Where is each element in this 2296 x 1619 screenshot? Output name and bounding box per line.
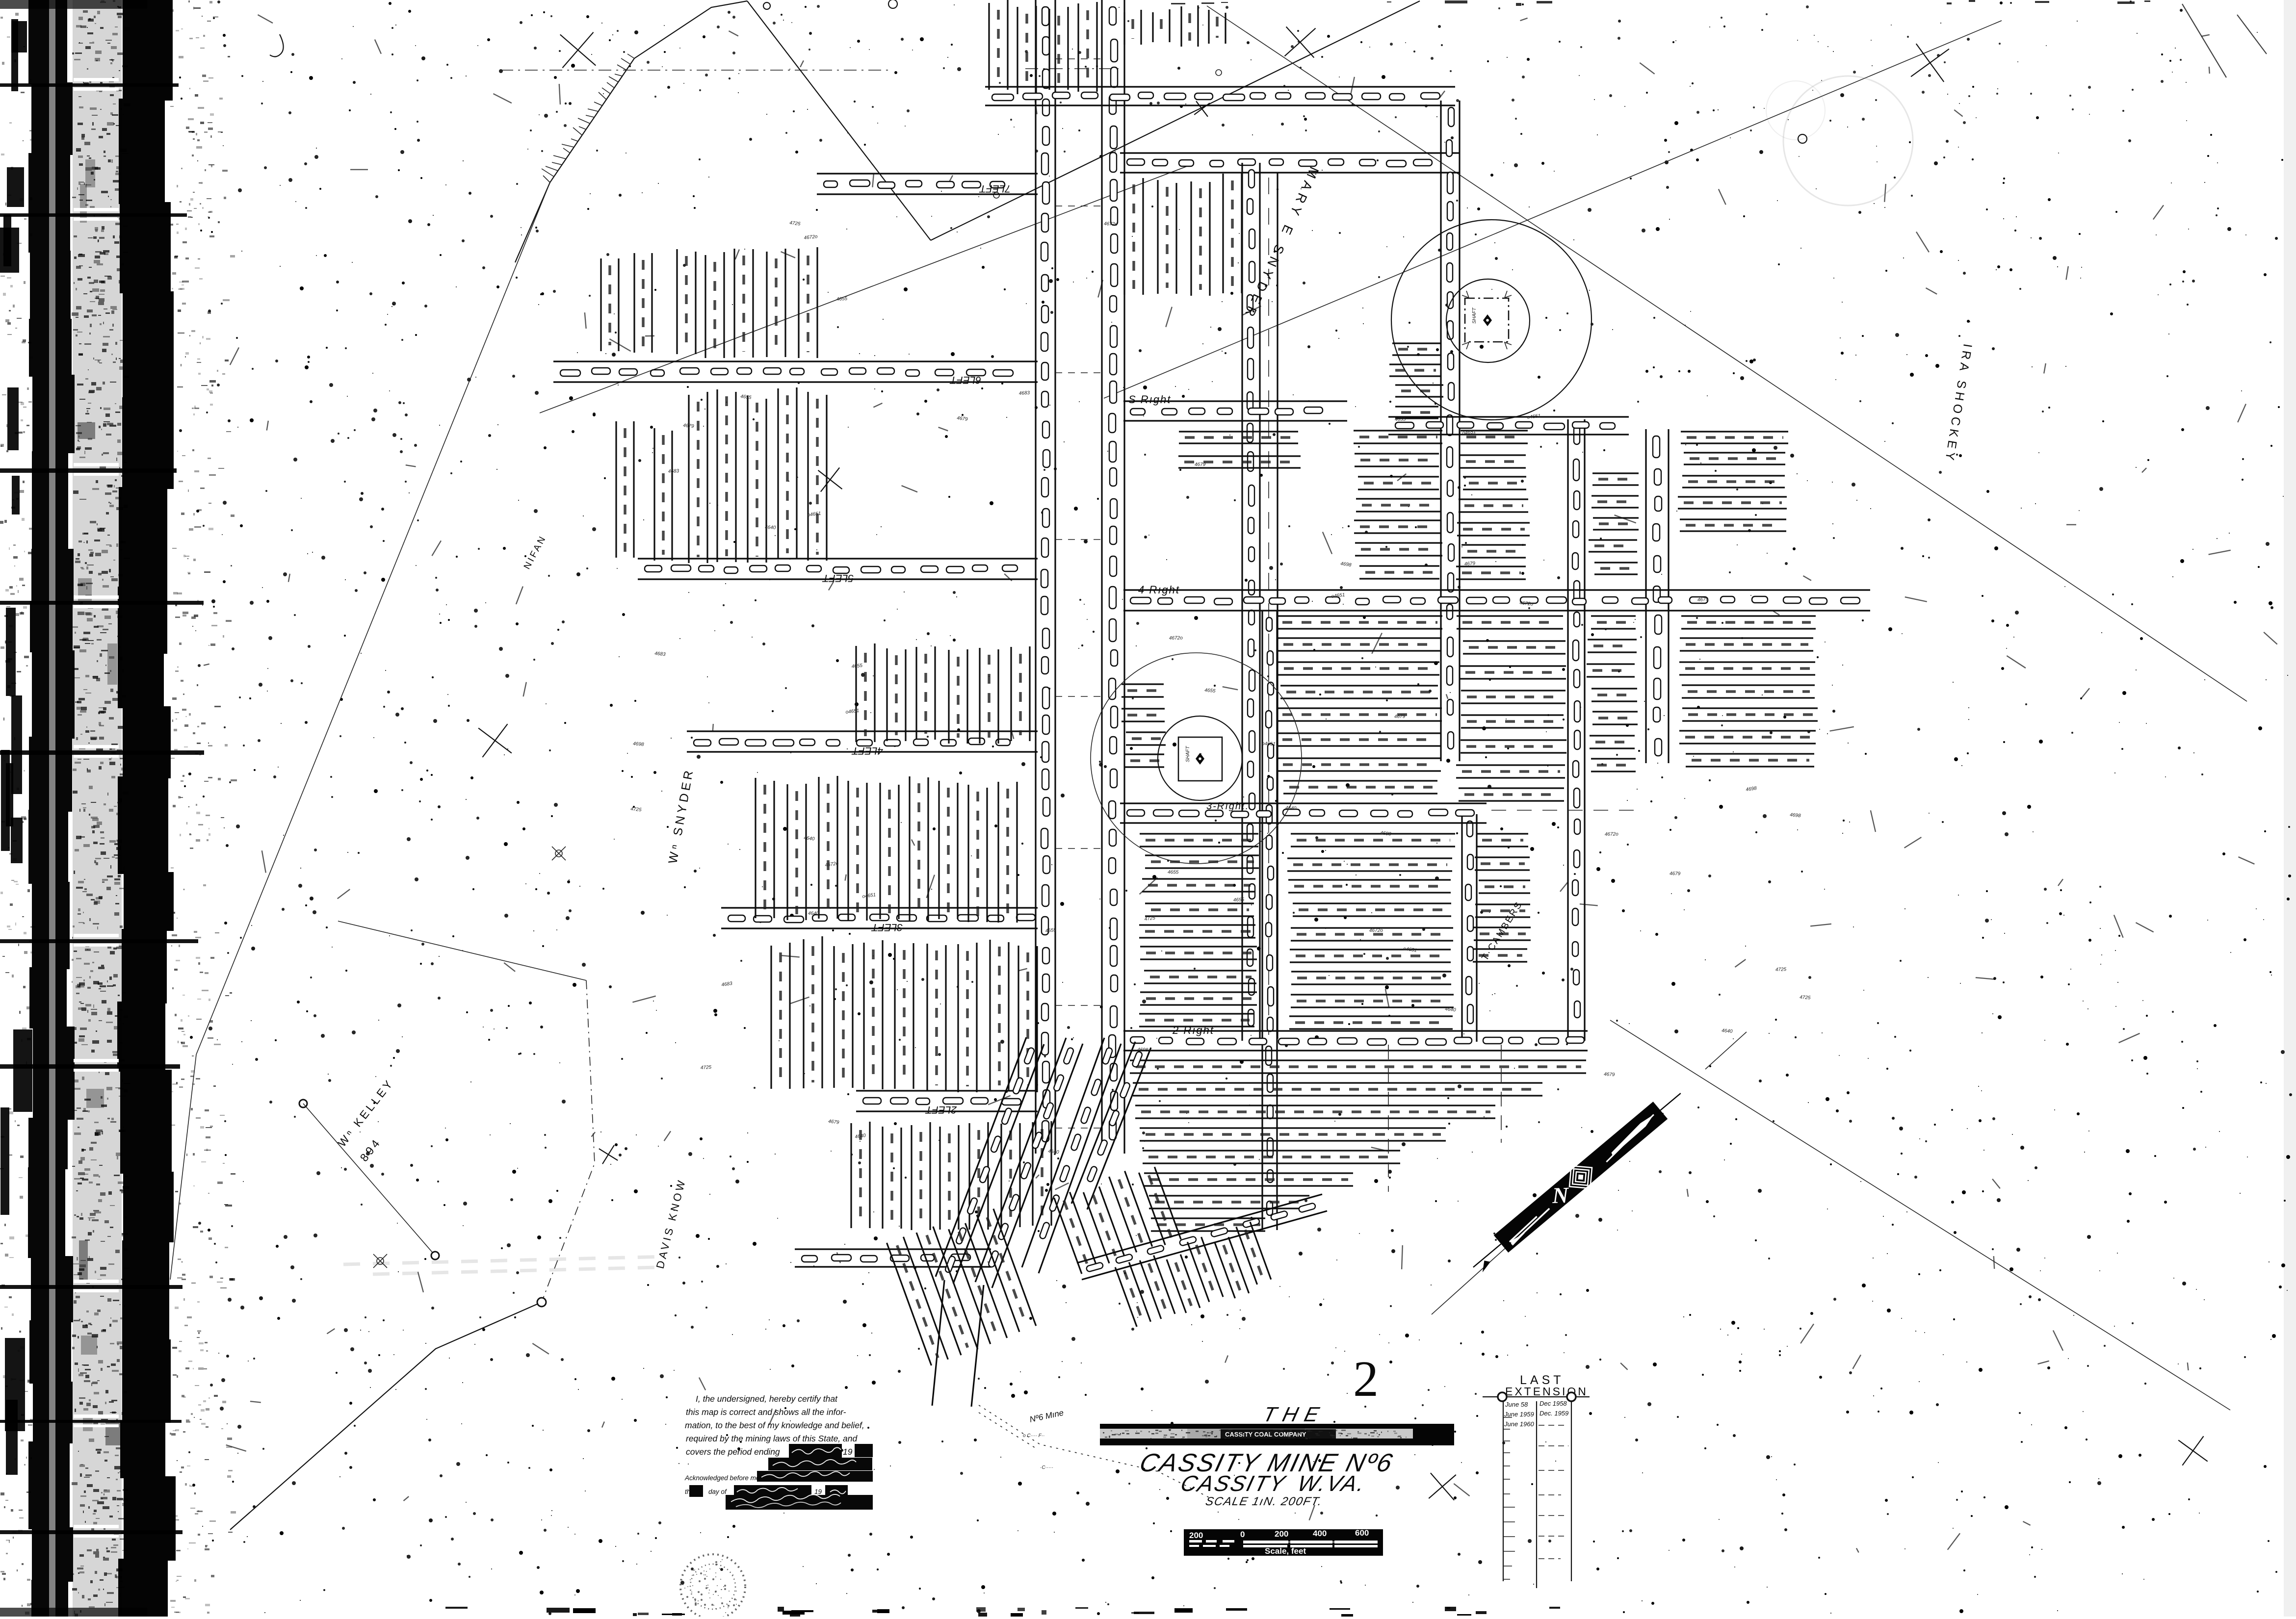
svg-text:4672o: 4672o — [1169, 636, 1183, 641]
svg-text:4640: 4640 — [808, 911, 819, 916]
svg-text:4655: 4655 — [1395, 417, 1406, 422]
svg-text:4679: 4679 — [1464, 561, 1475, 567]
svg-text:June 58: June 58 — [1505, 1401, 1528, 1408]
svg-text:4679: 4679 — [1670, 871, 1681, 876]
svg-text:4679: 4679 — [1604, 1072, 1615, 1078]
svg-text:4672o: 4672o — [1369, 928, 1383, 933]
svg-text:CASSITY W.VA.: CASSITY W.VA. — [1178, 1471, 1370, 1496]
svg-text:Dec. 1959: Dec. 1959 — [1539, 1410, 1568, 1417]
svg-text:4672o: 4672o — [1605, 832, 1618, 837]
svg-text:SCALE 1ıN. 200FT.: SCALE 1ıN. 200FT. — [1204, 1495, 1324, 1508]
svg-text:7LEFT: 7LEFT — [979, 183, 1011, 194]
svg-text:0: 0 — [1240, 1530, 1245, 1539]
svg-text:·C·····: ·C····· — [1040, 1465, 1053, 1470]
svg-text:June 1960: June 1960 — [1504, 1420, 1534, 1428]
svg-text:4LEFT: 4LEFT — [851, 745, 883, 756]
svg-text:4698: 4698 — [633, 741, 645, 747]
svg-text:6LEFT: 6LEFT — [949, 374, 981, 385]
svg-text:4640: 4640 — [1722, 1028, 1733, 1034]
svg-text:4655: 4655 — [1233, 897, 1245, 903]
svg-text:4640: 4640 — [1285, 805, 1297, 811]
svg-text:Scale, feet: Scale, feet — [1265, 1546, 1306, 1556]
svg-text:this map is correct and shows: this map is correct and shows all the in… — [686, 1407, 846, 1417]
svg-text:N: N — [1551, 1182, 1570, 1208]
svg-text:4725: 4725 — [701, 1065, 712, 1071]
svg-text:Dec 1958: Dec 1958 — [1539, 1400, 1567, 1407]
svg-text:4725: 4725 — [1800, 995, 1811, 1001]
svg-text:required by the mining laws of: required by the mining laws of this Stat… — [686, 1434, 858, 1443]
svg-text:5LEFT: 5LEFT — [822, 572, 854, 584]
svg-text:4679: 4679 — [1195, 462, 1206, 467]
svg-text:19: 19 — [843, 1447, 853, 1457]
svg-text:4655: 4655 — [1168, 870, 1179, 875]
svg-text:mation, to the best of my know: mation, to the best of my knowledge and … — [685, 1420, 864, 1430]
svg-text:I, the undersigned, hereby cer: I, the undersigned, hereby certify that — [696, 1394, 838, 1404]
svg-text:Acknowledged before me: Acknowledged before me — [684, 1474, 759, 1482]
svg-text:4683: 4683 — [668, 468, 679, 474]
svg-text:THE: THE — [1261, 1403, 1329, 1426]
svg-text:o4651: o4651 — [1262, 741, 1276, 747]
svg-text:4655: 4655 — [1045, 927, 1057, 934]
svg-text:200: 200 — [1275, 1529, 1288, 1539]
svg-text:4640: 4640 — [765, 525, 776, 531]
svg-text:4655: 4655 — [1204, 688, 1216, 694]
svg-text:4672o: 4672o — [1104, 221, 1118, 227]
svg-text:400: 400 — [1313, 1529, 1327, 1538]
svg-text:2 Rıght: 2 Rıght — [1172, 1024, 1214, 1036]
svg-text:2: 2 — [1353, 1351, 1379, 1407]
svg-text:day of: day of — [708, 1488, 727, 1495]
svg-text:2LEFT: 2LEFT — [925, 1104, 957, 1115]
svg-text:S Rıght: S Rıght — [1128, 393, 1171, 406]
svg-text:4679: 4679 — [1697, 597, 1709, 603]
svg-text:4655: 4655 — [836, 296, 848, 302]
svg-text:4679: 4679 — [1394, 714, 1406, 720]
svg-text:4725: 4725 — [1775, 967, 1787, 973]
svg-text:June 1959: June 1959 — [1504, 1411, 1534, 1418]
svg-text:SHAFT: SHAFT — [1185, 745, 1191, 762]
svg-text:3-Rıght.: 3-Rıght. — [1206, 801, 1249, 812]
svg-text:600: 600 — [1355, 1528, 1369, 1538]
svg-text:o C···· F··: o C···· F·· — [1023, 1433, 1044, 1439]
svg-text:19: 19 — [814, 1488, 822, 1495]
svg-text:4 Rıght: 4 Rıght — [1138, 584, 1180, 596]
svg-text:4683: 4683 — [1019, 390, 1030, 396]
svg-text:3LEFT: 3LEFT — [871, 922, 903, 933]
svg-text:covers the period ending: covers the period ending — [686, 1447, 780, 1457]
svg-text:200: 200 — [1189, 1531, 1203, 1540]
svg-text:SHAFT: SHAFT — [1472, 307, 1477, 324]
